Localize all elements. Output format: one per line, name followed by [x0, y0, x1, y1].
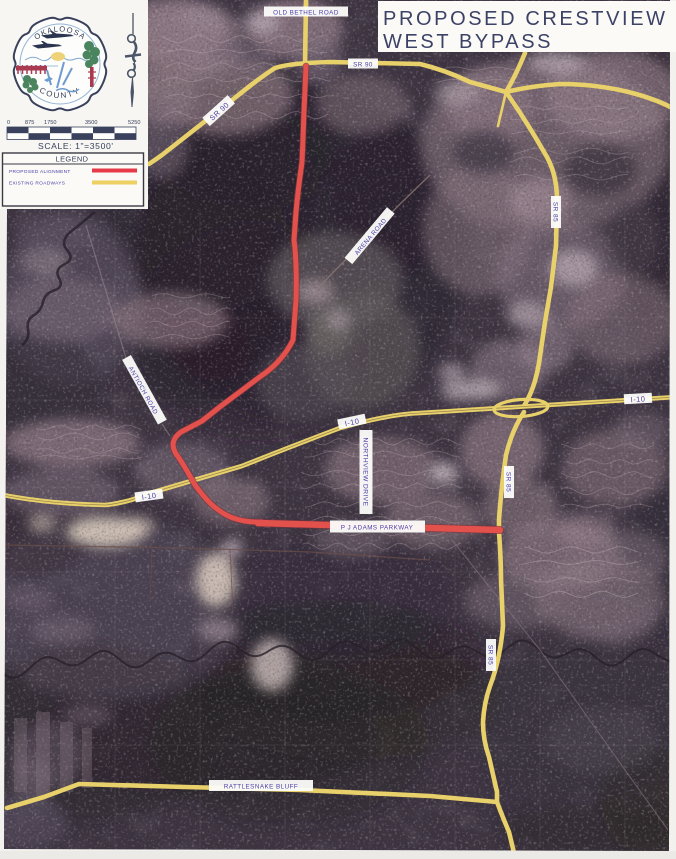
svg-text:PROPOSED ALIGNMENT: PROPOSED ALIGNMENT: [9, 169, 71, 175]
svg-text:SR 85: SR 85: [504, 472, 511, 492]
svg-text:LEGEND: LEGEND: [56, 155, 89, 164]
svg-text:1750: 1750: [44, 120, 56, 126]
svg-text:OLD BETHEL ROAD: OLD BETHEL ROAD: [273, 10, 339, 17]
svg-text:875: 875: [25, 120, 34, 126]
svg-text:5250: 5250: [128, 120, 140, 126]
svg-text:SCALE: 1"=3500': SCALE: 1"=3500': [38, 141, 114, 151]
svg-text:SR 85: SR 85: [486, 645, 493, 665]
svg-text:RATTLESNAKE BLUFF: RATTLESNAKE BLUFF: [224, 784, 298, 791]
svg-text:WEST BYPASS: WEST BYPASS: [383, 31, 553, 53]
svg-text:EXISTING ROADWAYS: EXISTING ROADWAYS: [9, 181, 65, 187]
svg-text:PROPOSED CRESTVIEW: PROPOSED CRESTVIEW: [383, 8, 668, 30]
svg-text:SR 85: SR 85: [551, 202, 558, 222]
svg-text:SR 90: SR 90: [353, 62, 373, 69]
svg-text:I-10: I-10: [630, 394, 645, 404]
svg-text:P J ADAMS PARKWAY: P J ADAMS PARKWAY: [341, 525, 414, 532]
svg-text:0: 0: [7, 120, 10, 126]
svg-text:3500: 3500: [85, 120, 97, 126]
svg-text:NORTHVIEW DRIVE: NORTHVIEW DRIVE: [361, 438, 368, 507]
